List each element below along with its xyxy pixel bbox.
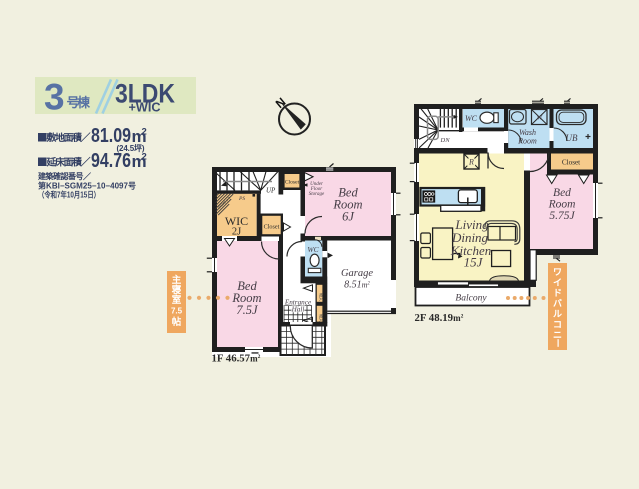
svg-text:ワ: ワ — [553, 267, 562, 277]
svg-text:建築確認番号／: 建築確認番号／ — [37, 171, 91, 181]
svg-text:ル: ル — [553, 309, 562, 319]
svg-text:DN: DN — [440, 137, 451, 144]
svg-text:Bed: Bed — [553, 187, 571, 199]
svg-text:+WIC: +WIC — [129, 100, 162, 115]
svg-text:Garage: Garage — [341, 268, 373, 279]
svg-text:5.75J: 5.75J — [549, 210, 575, 222]
svg-text:3: 3 — [44, 77, 65, 118]
svg-text:物入: 物入 — [319, 293, 325, 301]
svg-text:号棟: 号棟 — [67, 95, 91, 110]
svg-text:Hall: Hall — [291, 306, 305, 314]
svg-text:帖: 帖 — [172, 316, 182, 328]
svg-text:Closet: Closet — [285, 180, 300, 186]
svg-text:8.51m2: 8.51m2 — [344, 280, 370, 291]
svg-text:物入: 物入 — [319, 314, 325, 322]
svg-text:6J: 6J — [342, 210, 355, 224]
svg-text:R: R — [468, 158, 474, 167]
svg-text:2: 2 — [142, 127, 147, 138]
svg-text:2J: 2J — [232, 227, 241, 238]
svg-text:第KBI−SGM25−10−4097号: 第KBI−SGM25−10−4097号 — [38, 181, 136, 191]
svg-text:WC: WC — [465, 114, 478, 123]
svg-text:W: W — [537, 115, 543, 122]
svg-text:1F 46.57m2: 1F 46.57m2 — [212, 353, 261, 365]
svg-text:バ: バ — [553, 299, 562, 309]
svg-text:15J: 15J — [464, 255, 484, 270]
svg-text:PS: PS — [238, 196, 245, 202]
svg-text:WC: WC — [307, 245, 319, 254]
svg-text:イ: イ — [553, 278, 562, 288]
svg-text:2F 48.19m2: 2F 48.19m2 — [415, 312, 464, 324]
svg-text:UB: UB — [566, 133, 578, 143]
svg-text:Closet: Closet — [562, 159, 580, 167]
svg-text:Closet: Closet — [264, 224, 280, 231]
svg-text:（令和7年10月15日）: （令和7年10月15日） — [38, 190, 100, 200]
svg-text:コ: コ — [553, 320, 562, 330]
svg-text:Storage: Storage — [309, 192, 325, 197]
svg-text:敷地面積／: 敷地面積／ — [47, 131, 91, 144]
svg-text:94.76: 94.76 — [91, 149, 131, 172]
svg-text:UP: UP — [266, 187, 276, 195]
svg-text:延床面積／: 延床面積／ — [46, 156, 91, 169]
svg-text:7.5J: 7.5J — [236, 303, 259, 317]
svg-text:Balcony: Balcony — [455, 294, 487, 304]
svg-text:Room: Room — [548, 199, 576, 211]
svg-text:7.5: 7.5 — [171, 307, 183, 316]
svg-text:2: 2 — [142, 152, 147, 163]
svg-text:ド: ド — [553, 288, 562, 298]
svg-text:ー: ー — [553, 338, 563, 347]
svg-text:室: 室 — [172, 294, 182, 306]
